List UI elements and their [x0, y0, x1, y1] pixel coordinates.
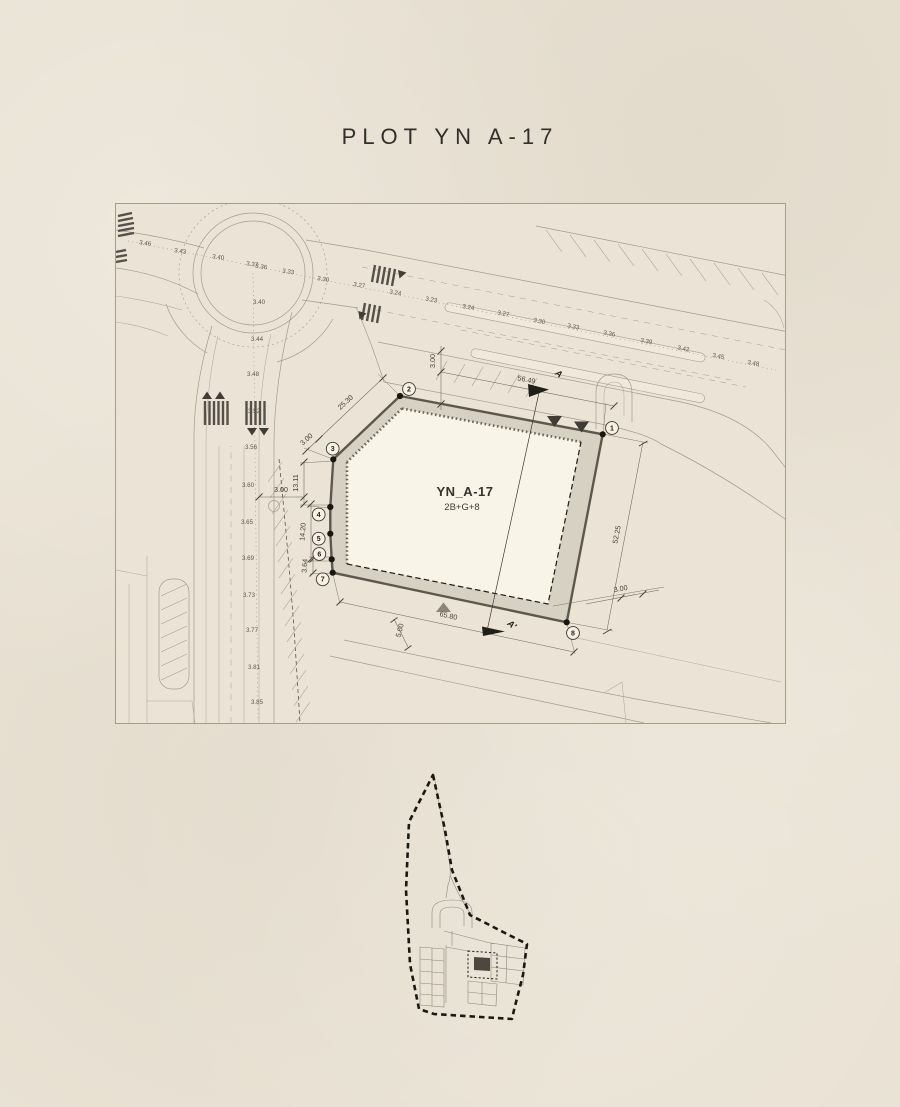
- vertex-number: 6: [317, 551, 321, 558]
- plot-name-label: YN_A-17: [437, 484, 494, 499]
- spot-level: 3.46: [139, 239, 152, 248]
- spot-level: 3.73: [243, 592, 256, 599]
- vertex-dot: [329, 556, 335, 562]
- spot-level: 3.36: [255, 263, 268, 272]
- key-map-plot-highlight: [474, 957, 490, 971]
- dimension-label: 3.00: [274, 485, 288, 494]
- key-map-district-boundary: [406, 775, 527, 1019]
- site-plan-drawing: 3.463.433.403.373.363.333.303.273.243.23…: [115, 203, 786, 724]
- spot-level: 3.40: [253, 299, 266, 306]
- spot-level: 3.52: [248, 408, 261, 415]
- spot-level: 3.48: [247, 371, 260, 378]
- dimension-label: 3.00: [428, 354, 437, 368]
- spot-level: 3.85: [251, 699, 264, 706]
- spot-level: 3.48: [747, 359, 761, 368]
- vertex-dot: [330, 570, 336, 576]
- vertex-number: 1: [610, 425, 614, 432]
- vertex-dot: [600, 431, 606, 437]
- spot-level: 3.69: [242, 555, 255, 562]
- page-title: PLOT YN A-17: [0, 124, 900, 150]
- spot-level: 3.45: [712, 352, 726, 361]
- parking-bays: [546, 230, 778, 295]
- spot-level: 3.44: [251, 336, 264, 343]
- dimension-label: 14.20: [297, 523, 307, 542]
- dimension-label: 3.64: [300, 559, 310, 574]
- dimension-label: 5.00: [393, 622, 405, 638]
- spot-level: 3.24: [389, 289, 403, 298]
- spot-level: 3.56: [245, 444, 258, 451]
- dimension-label: 52.25: [610, 525, 622, 544]
- plot-sheet-page: { "title": "PLOT YN A-17", "colors": { "…: [0, 0, 900, 1107]
- section-letter-a-prime: A': [505, 617, 519, 631]
- site-plan-svg: 3.463.433.403.373.363.333.303.273.243.23…: [116, 204, 785, 723]
- vertex-number: 3: [331, 446, 335, 453]
- vertex-dot: [327, 504, 333, 510]
- plot-storeys-label: 2B+G+8: [444, 502, 479, 513]
- vertex-number: 7: [321, 577, 325, 584]
- spot-level: 3.77: [246, 627, 259, 634]
- vertex-dot: [397, 393, 403, 399]
- vertex-dot: [330, 456, 336, 462]
- spot-level: 3.43: [174, 247, 187, 256]
- spot-level: 3.81: [248, 664, 261, 671]
- dimension-label: 13.11: [291, 474, 300, 491]
- vertex-dot: [327, 531, 333, 537]
- location-key-map: [398, 765, 558, 1027]
- vertex-number: 4: [317, 512, 321, 519]
- vertex-number: 5: [317, 536, 321, 543]
- vertex-number: 8: [571, 630, 575, 637]
- vertex-number: 2: [407, 386, 411, 393]
- vertex-dot: [564, 619, 570, 625]
- dimension-label: 25.30: [336, 393, 355, 412]
- spot-level: 3.23: [425, 296, 439, 305]
- dimension-label: 3.00: [613, 583, 628, 594]
- key-map-streets: [420, 781, 525, 1007]
- dimension-label: 56.49: [517, 373, 536, 385]
- spot-level: 3.33: [282, 268, 295, 277]
- roundabout: [166, 204, 333, 362]
- spot-level: 3.40: [212, 253, 225, 262]
- spot-level: 3.27: [353, 281, 367, 290]
- dimension-label: 65.80: [439, 609, 458, 622]
- spot-level: 3.30: [317, 275, 331, 284]
- spot-level: 3.60: [242, 482, 255, 489]
- spot-level: 3.65: [241, 519, 254, 526]
- dimension-label: 3.00: [298, 431, 314, 447]
- median-island: [159, 579, 189, 689]
